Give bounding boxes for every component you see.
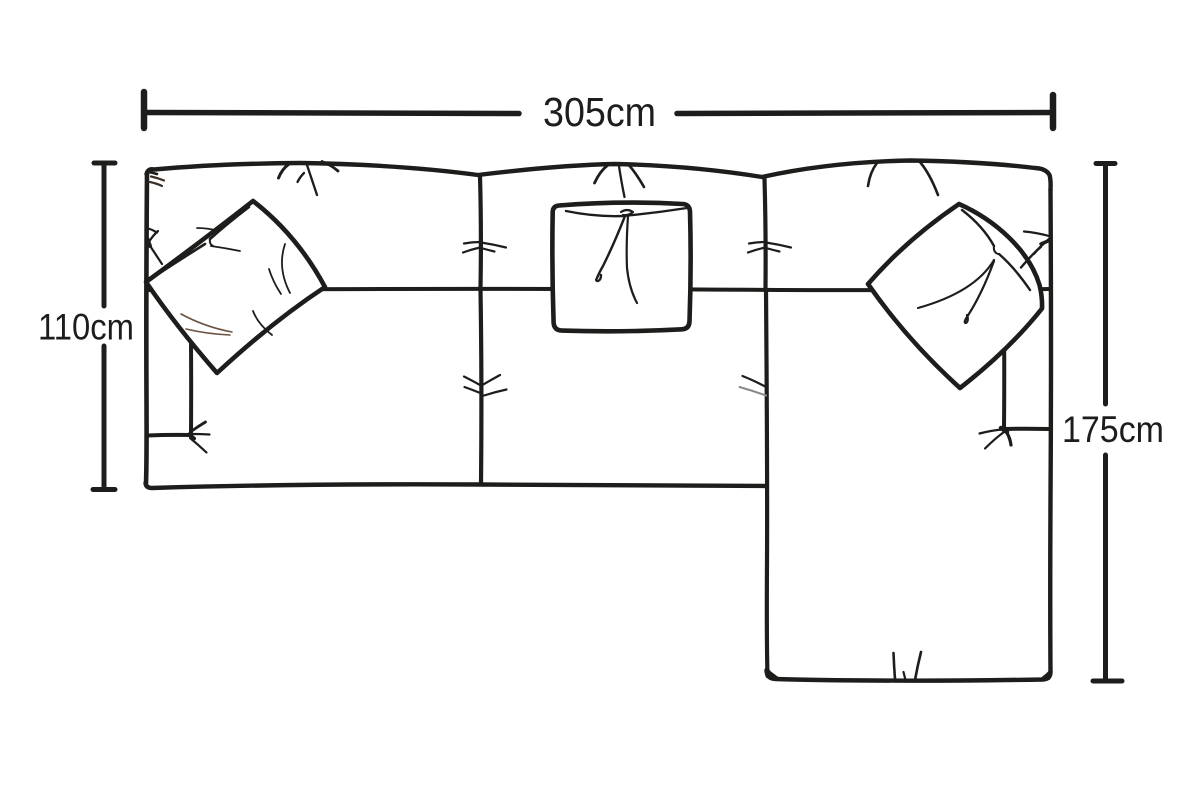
svg-text:305cm: 305cm xyxy=(543,89,656,135)
svg-text:110cm: 110cm xyxy=(38,307,134,348)
svg-text:175cm: 175cm xyxy=(1062,409,1164,450)
